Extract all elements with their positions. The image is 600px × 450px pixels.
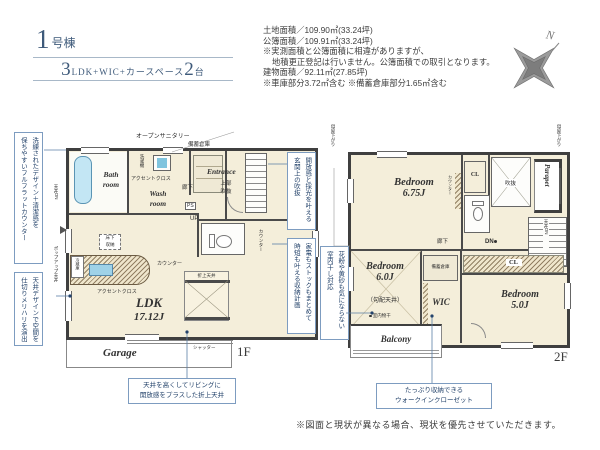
floor1-big-label: 1F [237, 344, 251, 360]
toilet-icon [209, 234, 215, 248]
window [564, 283, 571, 309]
up-label: UP [190, 216, 198, 222]
indoor-drying-label: 室内物干 [369, 313, 391, 319]
floor1-hallway-label: 廊下 [182, 183, 193, 191]
floor1-stock-storage-label: 備蓄倉庫 [188, 140, 210, 148]
footer-disclaimer: ※図面と現状が異なる場合、現状を優先させていただきます。 [296, 418, 561, 431]
floor2-big-label: 2F [554, 349, 568, 365]
layout-mid: LDK+WIC+カースペース [72, 67, 185, 77]
floor-storage-box: 床下 収納 [99, 234, 121, 250]
floor1-toilet-room [201, 223, 245, 255]
drying-dot [369, 315, 372, 318]
window [65, 229, 72, 253]
shelf-line [196, 178, 222, 179]
toilet-icon [473, 207, 483, 221]
detail-land-area: 土地面積／109.90㎡(33.24坪) [263, 25, 525, 36]
property-details: 土地面積／109.90㎡(33.24坪) 公簿面積／109.91㎡(33.24坪… [263, 25, 525, 89]
sloped-ceiling-note: （勾配天井） [359, 295, 411, 304]
window [347, 179, 354, 203]
shutter-label: シャッター [193, 345, 216, 351]
wic-label: WIC [423, 283, 459, 307]
bathtub-icon [74, 156, 92, 204]
callout-coffered-ceiling: 天井を高くしてリビングに 開放感をプラスした折上天井 [128, 378, 236, 404]
title-rule-bottom [33, 80, 233, 81]
compass-icon [505, 38, 565, 96]
callout-ceiling-design: 天井デザインで空間を 仕切りメリハリを演出 [14, 272, 43, 346]
balcony-rail [353, 350, 439, 354]
vanity-sink-icon [157, 158, 167, 168]
floor2-toilet-room [464, 195, 490, 233]
entrance-void-label: 上部 吹抜 [215, 181, 237, 196]
layout-line: 3LDK+WIC+カースペース2台 [33, 59, 233, 81]
layout-car-count: 2 [184, 59, 195, 80]
callout-storage-plan: 家電もストックもまとめて 時短も叶える収納計画 [287, 238, 316, 334]
bedroom-50-label: Bedroom 5.0J [477, 289, 563, 311]
kitchen-accent-cloth-label: アクセントクロス [97, 288, 137, 295]
coffered-ceiling-box: 折上天井 [184, 271, 229, 321]
x-pattern [185, 272, 228, 320]
cl-top-label: CL [465, 162, 485, 178]
shutter-door-line [127, 340, 233, 344]
window [377, 151, 407, 158]
kitchen-sink-icon [89, 264, 113, 276]
detail-note-1: ※実測面積と公簿面積に相違がありますが、 [263, 46, 525, 57]
parapet-box: Parapet [534, 159, 562, 213]
toilet-icon [216, 235, 232, 248]
garage-area: Garage シャッター [66, 340, 232, 368]
door-arc [227, 197, 243, 213]
floorplan-page: 1 号棟 3LDK+WIC+カースペース2台 土地面積／109.90㎡(33.2… [0, 0, 600, 450]
moya-sagari-left-label: 母屋下がり [330, 124, 336, 170]
detail-garage-note: ※車庫部分3.72㎡含む ※備蓄倉庫部分1.65㎡含む [263, 78, 525, 89]
cl-right-label: CL [506, 259, 522, 266]
dn-label: DN [485, 239, 497, 245]
window [163, 147, 183, 154]
floor1-plan: Bath room アクセントクロス Wash room 洗濯機 廊下 PS U… [66, 148, 318, 340]
title-rule-top [33, 57, 233, 58]
detail-building-area: 建物面積／92.11㎡(27.85坪) [263, 67, 525, 78]
detail-registered-area: 公簿面積／109.91㎡(33.24坪) [263, 36, 525, 47]
floor2-stock-storage-label: 備蓄倉庫 [424, 256, 457, 270]
floor2-hallway-label: 廊下 [437, 237, 448, 245]
callout-entrance-void: 開放感と採光を叶える 玄関上の吹抜 [287, 152, 316, 230]
wic-shelf [423, 283, 428, 325]
callout-wic: たっぷり収納できる ウォークインクローゼット [376, 383, 492, 409]
floor2-ceiling-dn-label: 天井DN [543, 219, 549, 253]
washroom-label: Wash room [141, 189, 175, 209]
floor2-closet-top: CL [464, 161, 486, 193]
fridge-box: 冷蔵庫 [71, 256, 84, 278]
bathroom: Bath room [70, 152, 128, 212]
wic-room: WIC [423, 283, 459, 325]
wall [127, 151, 129, 213]
void-label: 吹抜 [504, 179, 517, 187]
unit-title: 1 号棟 [36, 26, 76, 53]
floor1-stairs [245, 153, 267, 213]
unit-number: 1 [36, 26, 50, 53]
window [65, 291, 72, 321]
layout-ldk-count: 3 [61, 59, 72, 80]
vanity-icon [153, 155, 171, 171]
bedroom-60-room: Bedroom 6.0J （勾配天井） 室内物干 [351, 251, 421, 327]
ldk-label: LDK 17.12J [117, 295, 181, 323]
washer-label: 洗濯機 [139, 154, 145, 178]
window [81, 147, 109, 154]
stairs-counter-label: カウンター [258, 229, 264, 263]
floor2-pantry: 備蓄倉庫 [423, 255, 458, 281]
wall [460, 251, 462, 343]
layout-tail: 台 [195, 67, 205, 77]
popup-ceiling-label: ポップアップ天井 [53, 246, 59, 296]
toilet-icon [472, 201, 484, 206]
unit-suffix: 号棟 [50, 34, 76, 53]
wall [461, 273, 567, 275]
fridge-label: 冷蔵庫 [75, 258, 81, 278]
detail-note-2: 地積更正登記は行いません。公簿面積での取引となります。 [263, 57, 525, 68]
bedroom-675-label: Bedroom 6.75J [369, 177, 459, 199]
kitchen-counter-label: カウンター [157, 260, 182, 267]
void-box: 吹抜 [491, 157, 531, 207]
floor1-ceiling-dn-label: 天井DN [53, 184, 59, 224]
door-arc [471, 323, 486, 338]
open-sanitary-label: オープンサニタリー [136, 131, 190, 140]
floor2-plan: Bedroom 6.75J カウンター CL 吹抜 Parap [348, 152, 570, 348]
wall [461, 155, 463, 249]
bathroom-label: Bath room [94, 170, 128, 190]
balcony: Balcony [350, 324, 442, 358]
callout-indoor-drying: 花粉や黄砂も気にならない 室内干し対応 [320, 246, 349, 340]
bedroom-counter-label: カウンター [447, 175, 453, 207]
garage-label: Garage [103, 347, 137, 359]
floor2-closet-right: CL [463, 255, 564, 273]
ps-label: PS [185, 202, 196, 210]
wall [69, 213, 199, 215]
parapet-label: Parapet [543, 164, 551, 208]
dn-dot [494, 240, 497, 243]
bedroom-60-label: Bedroom 6.0J [351, 261, 419, 283]
entrance-label: Entrance [207, 167, 236, 176]
callout-flat-counter: 洗練されたデザイン＋清潔感を 保ちやすいフルフラットカウンター [14, 132, 43, 264]
wash-accent-cloth-label: アクセントクロス [131, 175, 171, 182]
window [501, 342, 533, 349]
balcony-label: Balcony [351, 326, 441, 344]
